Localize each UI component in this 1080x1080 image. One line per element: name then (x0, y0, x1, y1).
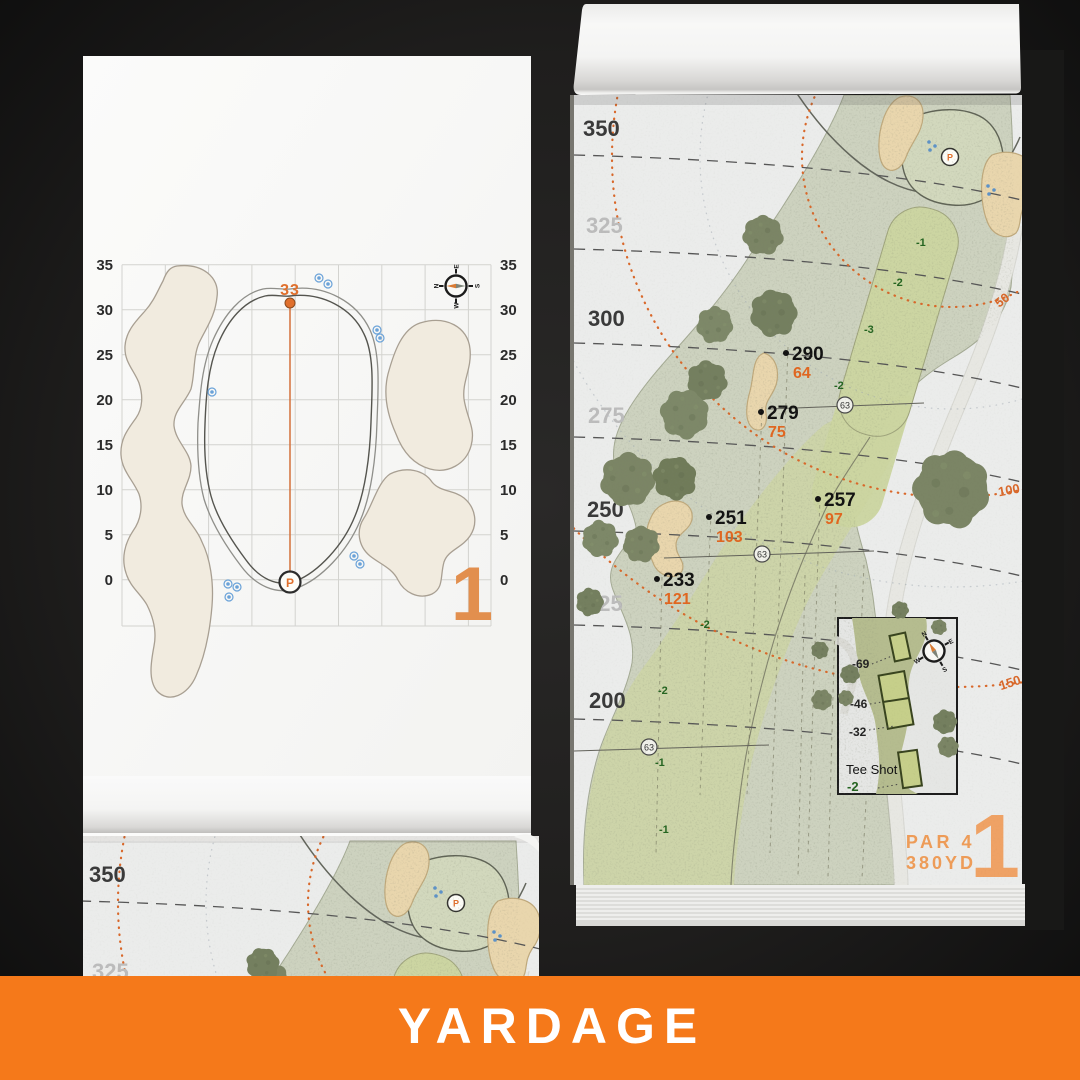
svg-text:20: 20 (96, 392, 113, 409)
svg-text:20: 20 (500, 392, 517, 409)
svg-text:15: 15 (500, 437, 517, 454)
svg-text:25: 25 (96, 347, 113, 364)
svg-text:10: 10 (96, 482, 113, 499)
svg-text:5: 5 (500, 527, 508, 544)
svg-text:0: 0 (105, 572, 113, 589)
svg-text:YARDAGE: YARDAGE (398, 998, 706, 1054)
svg-text:35: 35 (500, 257, 517, 274)
svg-text:0: 0 (500, 572, 508, 589)
svg-text:33: 33 (280, 282, 300, 299)
svg-text:30: 30 (500, 302, 517, 319)
svg-text:35: 35 (96, 257, 113, 274)
svg-text:P: P (286, 576, 294, 590)
svg-text:5: 5 (105, 527, 113, 544)
svg-text:30: 30 (96, 302, 113, 319)
svg-text:15: 15 (96, 437, 113, 454)
svg-text:25: 25 (500, 347, 517, 364)
svg-text:10: 10 (500, 482, 517, 499)
svg-text:1: 1 (451, 552, 493, 637)
